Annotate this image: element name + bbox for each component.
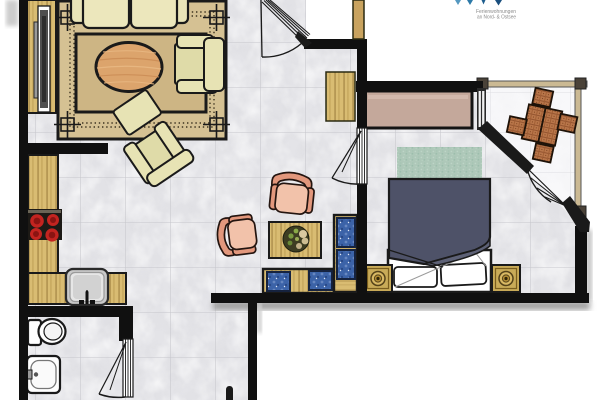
svg-text:an Nord- & Ostsee: an Nord- & Ostsee (477, 15, 516, 21)
